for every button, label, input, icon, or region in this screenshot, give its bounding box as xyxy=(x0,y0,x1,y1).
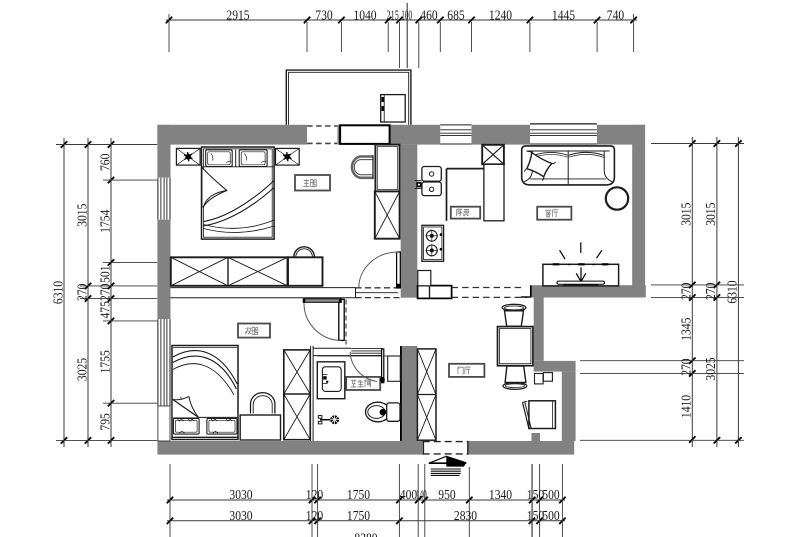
svg-text:3015: 3015 xyxy=(75,204,90,227)
svg-text:120: 120 xyxy=(306,488,323,503)
svg-text:795: 795 xyxy=(98,413,113,430)
svg-text:6310: 6310 xyxy=(726,280,741,303)
svg-text:270: 270 xyxy=(680,283,695,300)
svg-text:1755: 1755 xyxy=(98,350,113,373)
svg-text:500: 500 xyxy=(542,488,559,503)
svg-text:3030: 3030 xyxy=(229,488,252,503)
svg-text:3030: 3030 xyxy=(229,509,252,524)
svg-text:270: 270 xyxy=(98,284,113,301)
svg-text:1754: 1754 xyxy=(98,210,113,233)
svg-text:730: 730 xyxy=(315,8,332,23)
svg-text:100: 100 xyxy=(401,8,412,23)
svg-text:501: 501 xyxy=(98,266,113,283)
svg-text:2915: 2915 xyxy=(226,8,249,23)
svg-text:1340: 1340 xyxy=(489,488,512,503)
svg-text:6310: 6310 xyxy=(51,281,66,304)
svg-text:215: 215 xyxy=(387,8,399,23)
svg-text:500: 500 xyxy=(542,509,559,524)
svg-text:2830: 2830 xyxy=(454,509,477,524)
svg-text:760: 760 xyxy=(98,154,113,171)
svg-text:1240: 1240 xyxy=(489,8,512,23)
svg-text:3025: 3025 xyxy=(704,357,719,380)
svg-text:1445: 1445 xyxy=(552,8,575,23)
svg-text:8380: 8380 xyxy=(354,532,377,537)
svg-text:3025: 3025 xyxy=(75,358,90,381)
svg-text:1410: 1410 xyxy=(680,395,695,418)
svg-text:3015: 3015 xyxy=(704,203,719,226)
svg-text:685: 685 xyxy=(447,8,464,23)
svg-text:270: 270 xyxy=(680,358,695,375)
svg-text:950: 950 xyxy=(438,488,455,503)
svg-text:1750: 1750 xyxy=(347,509,370,524)
svg-text:270: 270 xyxy=(75,284,90,301)
svg-text:1040: 1040 xyxy=(353,8,376,23)
svg-text:400: 400 xyxy=(400,488,417,503)
svg-text:1750: 1750 xyxy=(347,488,370,503)
svg-text:120: 120 xyxy=(306,509,323,524)
svg-text:460: 460 xyxy=(420,8,437,23)
svg-text:740: 740 xyxy=(607,8,624,23)
svg-text:475: 475 xyxy=(98,301,113,318)
svg-text:3015: 3015 xyxy=(680,203,695,226)
svg-text:1345: 1345 xyxy=(680,318,695,341)
svg-text:140: 140 xyxy=(416,488,427,503)
svg-text:270: 270 xyxy=(704,283,719,300)
